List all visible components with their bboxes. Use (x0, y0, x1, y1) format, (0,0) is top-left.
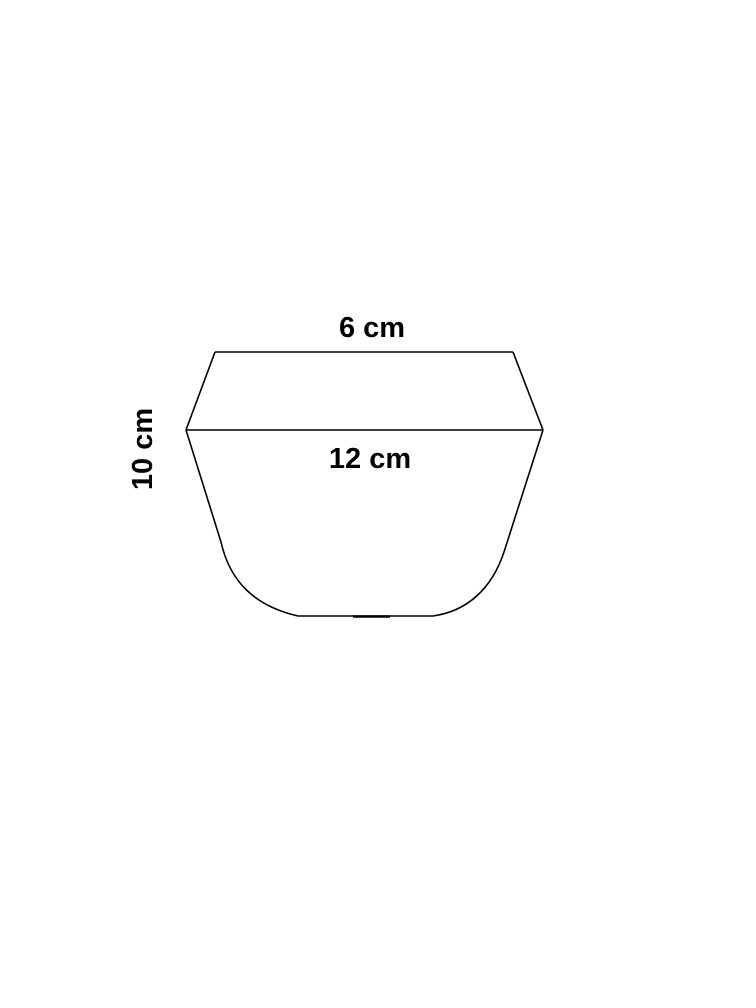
middle-width-label: 12 cm (329, 443, 411, 475)
diagram-page: 6 cm 12 cm 10 cm (0, 0, 756, 1008)
trapezoid-right-slant-line (513, 352, 543, 430)
geometry-figure-svg: 6 cm 12 cm 10 cm (0, 0, 756, 1008)
top-width-label: 6 cm (339, 312, 405, 344)
height-label: 10 cm (127, 408, 159, 490)
trapezoid-left-slant-line (186, 352, 215, 430)
